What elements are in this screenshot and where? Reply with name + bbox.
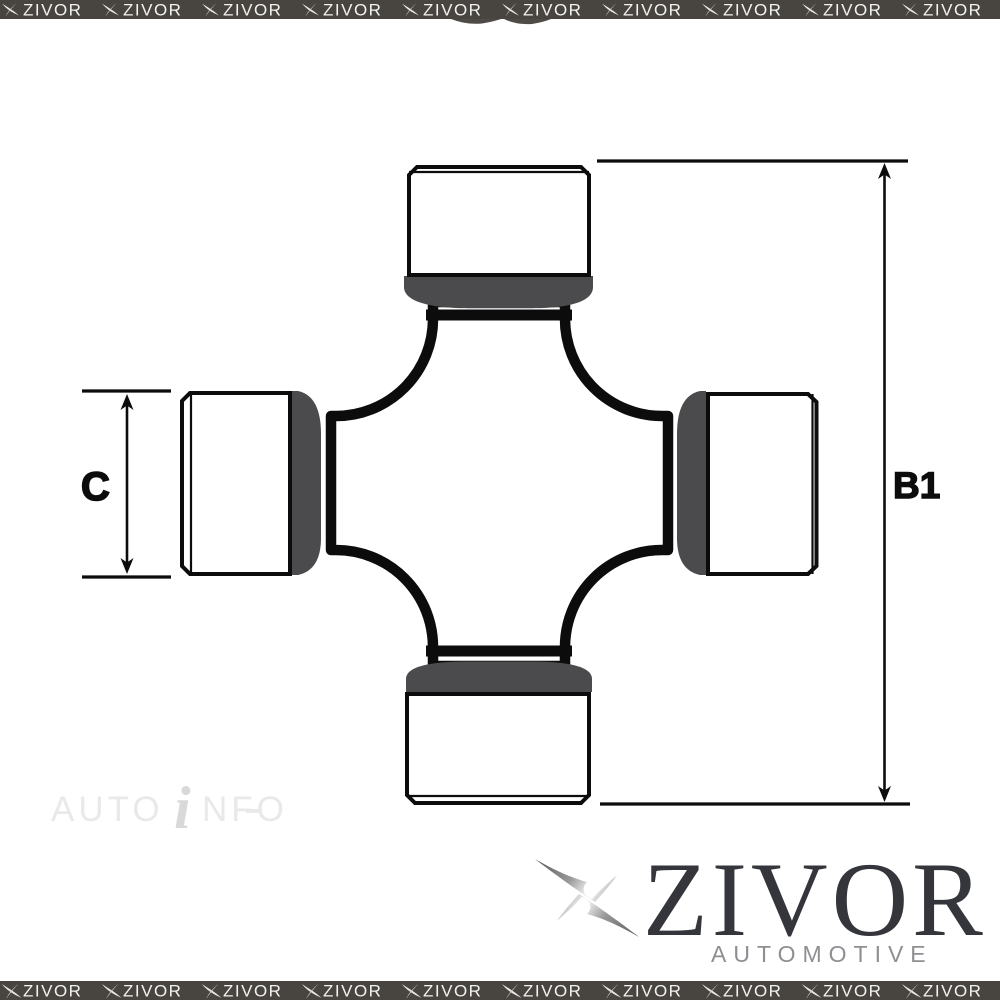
svg-text:ZIVOR: ZIVOR xyxy=(123,982,182,1000)
svg-text:ZIVOR: ZIVOR xyxy=(723,982,782,1000)
svg-text:ZIVOR: ZIVOR xyxy=(323,982,382,1000)
svg-text:ZIVOR: ZIVOR xyxy=(923,982,982,1000)
svg-text:ZIVOR: ZIVOR xyxy=(223,982,282,1000)
svg-text:B1: B1 xyxy=(893,465,940,506)
svg-text:ZIVOR: ZIVOR xyxy=(23,982,82,1000)
svg-text:ZIVOR: ZIVOR xyxy=(623,982,682,1000)
svg-text:ZIVOR: ZIVOR xyxy=(823,982,882,1000)
svg-text:ZIVOR: ZIVOR xyxy=(523,982,582,1000)
svg-text:ZIVOR: ZIVOR xyxy=(423,982,482,1000)
svg-text:C: C xyxy=(81,465,110,509)
